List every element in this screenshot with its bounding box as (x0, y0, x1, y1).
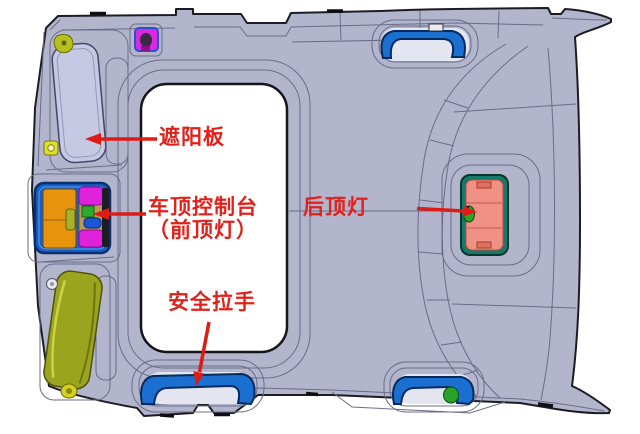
grab-handle-rear-right (393, 374, 473, 404)
headliner-diagram-page: 遮阳板 车顶控制台 （前顶灯） 后顶灯 安全拉手 (0, 0, 640, 434)
label-roof-console-line1: 车顶控制台 (148, 196, 258, 219)
handle-clip-icon (444, 387, 459, 403)
grab-handle-front-right (381, 24, 469, 61)
label-roof-console: 车顶控制台 （前顶灯） (148, 196, 258, 242)
label-rear-dome-light: 后顶灯 (303, 196, 369, 219)
label-sun-visor: 遮阳板 (159, 126, 225, 149)
front-dome-light-lens (82, 206, 94, 217)
label-grab-handle: 安全拉手 (168, 291, 256, 314)
roof-clip (135, 28, 158, 51)
roof-console-with-front-dome-light (35, 183, 110, 253)
rear-dome-light (461, 175, 508, 255)
label-roof-console-line2: （前顶灯） (148, 219, 258, 242)
